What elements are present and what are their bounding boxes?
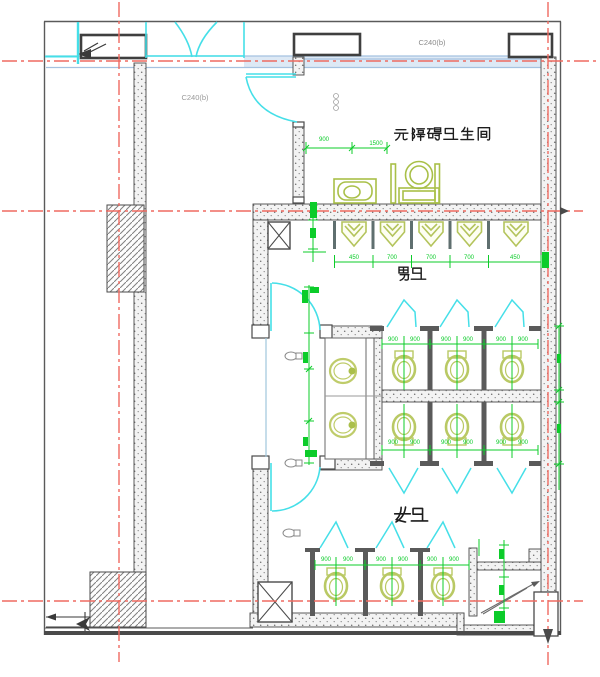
- svg-text:700: 700: [426, 255, 437, 261]
- svg-text:900: 900: [463, 337, 474, 343]
- svg-text:900: 900: [410, 337, 421, 343]
- svg-text:900: 900: [376, 557, 387, 563]
- svg-text:900: 900: [496, 337, 507, 343]
- svg-text:900: 900: [441, 440, 452, 446]
- svg-text:900: 900: [496, 440, 507, 446]
- svg-text:900: 900: [518, 337, 529, 343]
- svg-text:900: 900: [388, 440, 399, 446]
- svg-text:900: 900: [410, 440, 421, 446]
- svg-text:900: 900: [441, 337, 452, 343]
- svg-text:900: 900: [343, 557, 354, 563]
- svg-text:900: 900: [427, 557, 438, 563]
- svg-text:1500: 1500: [369, 141, 383, 147]
- svg-text:900: 900: [518, 440, 529, 446]
- svg-text:C240(b): C240(b): [181, 93, 209, 102]
- svg-text:900: 900: [319, 137, 330, 143]
- svg-text:700: 700: [464, 255, 475, 261]
- svg-text:450: 450: [510, 255, 521, 261]
- svg-text:900: 900: [449, 557, 460, 563]
- svg-text:900: 900: [388, 337, 399, 343]
- svg-text:700: 700: [387, 255, 398, 261]
- svg-text:450: 450: [349, 255, 360, 261]
- svg-text:900: 900: [398, 557, 409, 563]
- svg-text:900: 900: [463, 440, 474, 446]
- svg-text:900: 900: [321, 557, 332, 563]
- svg-text:C240(b): C240(b): [418, 38, 446, 47]
